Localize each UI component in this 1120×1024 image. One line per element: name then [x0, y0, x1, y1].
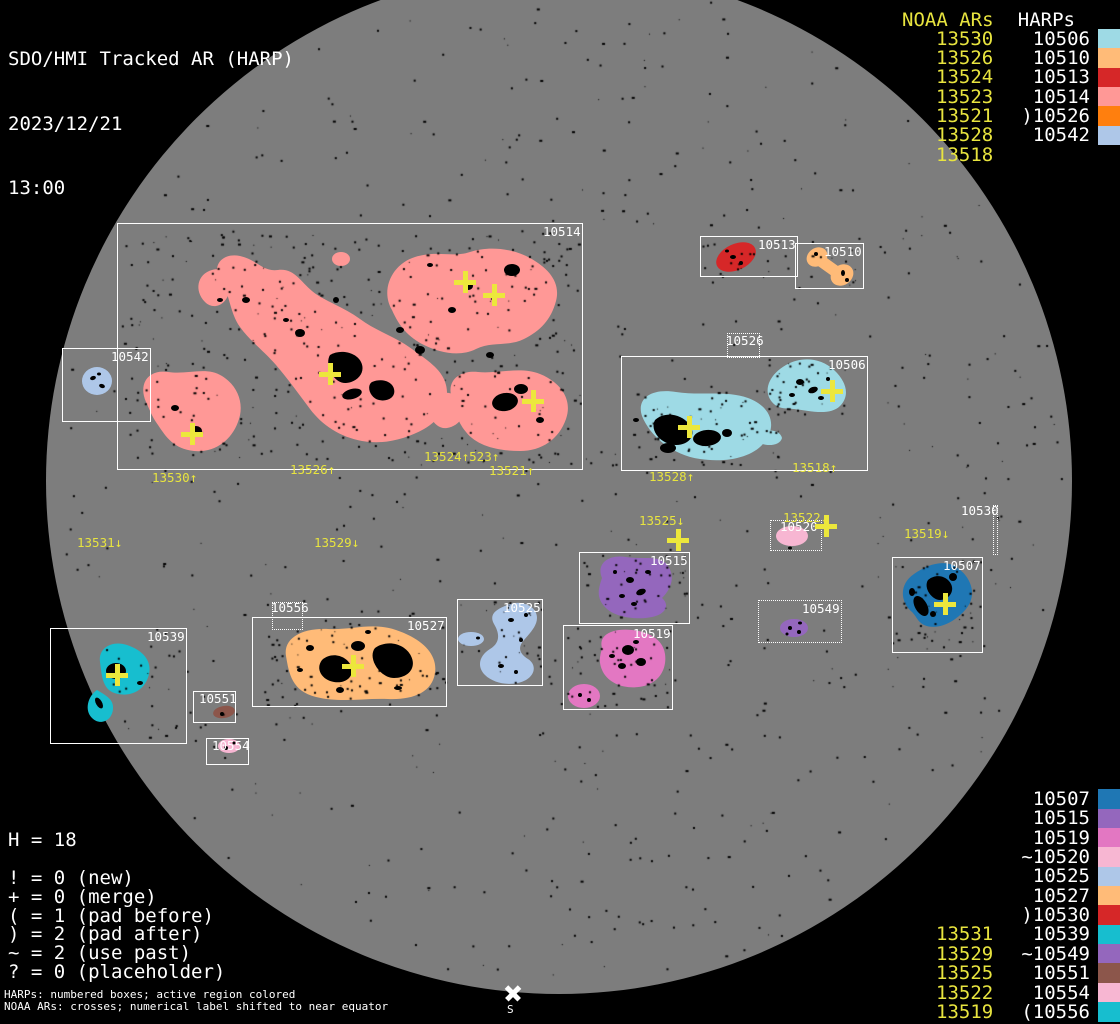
harp-number: 10554: [935, 984, 1090, 1003]
plot-title-block: SDO/HMI Tracked AR (HARP) 2023/12/21 13:…: [8, 6, 294, 243]
harp-color-swatch: [1098, 789, 1120, 808]
plot-date: 2023/12/21: [8, 114, 294, 136]
harp-color-swatch: [1098, 886, 1120, 905]
harp-box-label-10515: 10515: [650, 554, 688, 567]
harp-box-10539: [50, 628, 187, 744]
harp-box-10506: [621, 356, 868, 471]
noaa-ar-cross: [319, 363, 341, 385]
noaa-ar-cross: [522, 390, 544, 412]
noaa-ar-cross: [454, 271, 476, 293]
harp-color-swatch: [1098, 925, 1120, 944]
harp-number: 10525: [935, 867, 1090, 886]
harp-color-swatch: [1098, 944, 1120, 963]
noaa-ar-label: 13529↓: [314, 536, 359, 549]
flag-count-line: ? = 0 (placeholder): [8, 963, 225, 982]
harp-box-label-10507: 10507: [943, 559, 981, 572]
harp-box-label-10530: 10530: [961, 504, 999, 517]
harp-box-label-10525: 10525: [503, 601, 541, 614]
flag-count-line: + = 0 (merge): [8, 888, 157, 907]
harp-box-label-10519: 10519: [633, 627, 671, 640]
harp-box-label-10527: 10527: [407, 619, 445, 632]
harp-box-label-10526: 10526: [726, 334, 764, 347]
noaa-ar-cross: [934, 593, 956, 615]
harp-box-label-10554: 10554: [212, 739, 250, 752]
harp-color-swatch: [1098, 867, 1120, 886]
noaa-ar-label: 13524↑523↑: [424, 450, 499, 463]
noaa-ar-label: 13526↑: [290, 463, 335, 476]
noaa-ar-number: 13518: [936, 146, 993, 165]
noaa-ar-label: 13525↓: [639, 514, 684, 527]
harp-color-swatch: [1098, 106, 1120, 125]
harp-color-swatch: [1098, 963, 1120, 982]
south-pole-marker: [504, 984, 522, 1002]
harp-box-label-10556: 10556: [271, 601, 309, 614]
harp-color-swatch: [1098, 48, 1120, 67]
harp-number: 10514: [935, 88, 1090, 107]
harp-box-label-10539: 10539: [147, 630, 185, 643]
harp-number: 10551: [935, 964, 1090, 983]
harp-box-label-10513: 10513: [758, 238, 796, 251]
harp-number: (10556: [935, 1003, 1090, 1022]
footer-line-noaa: NOAA ARs: crosses; numerical label shift…: [4, 1001, 388, 1013]
noaa-ar-cross: [106, 664, 128, 686]
harp-number: 10513: [935, 68, 1090, 87]
harp-box-label-10506: 10506: [828, 358, 866, 371]
plot-title: SDO/HMI Tracked AR (HARP): [8, 49, 294, 71]
harp-tracker-view: 1051410542105131051010526105061051510519…: [0, 0, 1120, 1024]
noaa-ar-label: 13531↓: [77, 536, 122, 549]
flag-count-line: ! = 0 (new): [8, 869, 134, 888]
harp-number: 10542: [935, 126, 1090, 145]
harp-color-swatch: [1098, 809, 1120, 828]
harp-number: 10539: [935, 925, 1090, 944]
harp-color-swatch: [1098, 29, 1120, 48]
noaa-ar-cross: [815, 515, 837, 537]
noaa-ar-cross: [483, 284, 505, 306]
harp-number: 10506: [935, 30, 1090, 49]
harp-color-swatch: [1098, 87, 1120, 106]
noaa-ar-cross: [678, 416, 700, 438]
harp-color-swatch: [1098, 847, 1120, 866]
noaa-ar-cross: [342, 655, 364, 677]
harp-number: 10515: [935, 809, 1090, 828]
noaa-ar-cross: [667, 529, 689, 551]
harp-box-label-10514: 10514: [543, 225, 581, 238]
harp-color-swatch: [1098, 1002, 1120, 1021]
plot-time: 13:00: [8, 178, 294, 200]
harp-color-swatch: [1098, 126, 1120, 145]
noaa-ar-label: 13521↑: [489, 464, 534, 477]
noaa-ar-label: 13519↓: [904, 527, 949, 540]
south-pole-label: S: [507, 1003, 514, 1016]
noaa-ar-label: 13530↑: [152, 471, 197, 484]
harp-box-label-10510: 10510: [824, 245, 862, 258]
harp-count: H = 18: [8, 831, 77, 850]
harp-color-swatch: [1098, 983, 1120, 1002]
noaa-ar-label: 13528↑: [649, 470, 694, 483]
harp-color-swatch: [1098, 828, 1120, 847]
harp-color-swatch: [1098, 68, 1120, 87]
noaa-ar-cross: [821, 380, 843, 402]
harp-color-swatch: [1098, 905, 1120, 924]
harp-box-label-10551: 10551: [199, 692, 237, 705]
harp-box-label-10542: 10542: [111, 350, 149, 363]
harp-box-label-10549: 10549: [802, 602, 840, 615]
noaa-ar-cross: [181, 423, 203, 445]
noaa-ar-label: 13518↑: [792, 461, 837, 474]
